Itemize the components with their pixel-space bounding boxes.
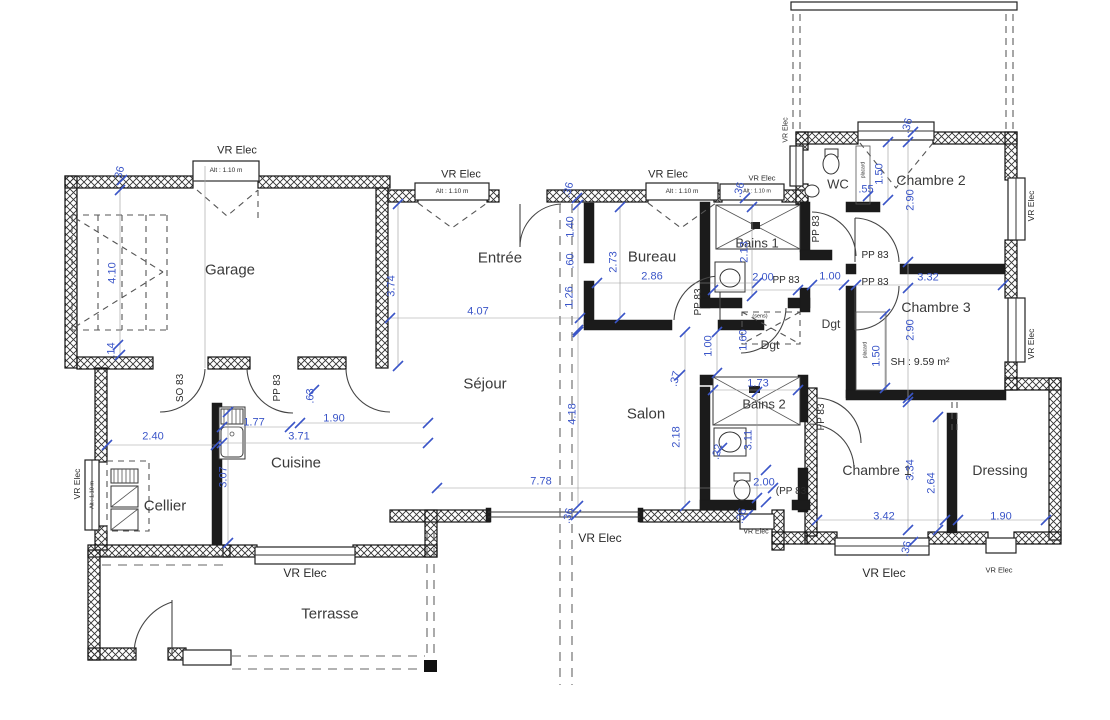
dimension-label: .60 xyxy=(566,253,577,268)
dimension-label: 2.13 xyxy=(740,241,751,262)
annotation-label: PP 83 xyxy=(772,276,799,286)
dimension-label: 2.40 xyxy=(142,432,163,443)
annotation-label: PP 83 xyxy=(694,288,704,315)
dimension-label: 2.90 xyxy=(906,189,917,210)
annotation-label: VR Elec xyxy=(283,567,326,579)
dimension-label: .55 xyxy=(858,185,873,196)
room-label: Chambre 1 xyxy=(842,463,911,477)
room-label: Terrasse xyxy=(301,607,359,622)
dimension-label: 1.60 xyxy=(739,329,750,350)
dimension-label: 3.32 xyxy=(917,273,938,284)
dimension-label: 2.90 xyxy=(906,319,917,340)
dimension-label: 3.11 xyxy=(744,430,755,451)
annotation-label: SH : 9.59 m² xyxy=(891,357,950,368)
dimension-label: 3.07 xyxy=(219,466,230,487)
room-label: Garage xyxy=(205,263,255,278)
room-label: Dgt xyxy=(822,318,841,330)
annotation-label: PP 83 xyxy=(861,251,888,261)
dimension-label: 1.77 xyxy=(243,418,264,429)
dimension-label: .14 xyxy=(107,342,118,357)
room-label: Chambre 2 xyxy=(896,173,965,187)
room-label: Cellier xyxy=(144,499,187,514)
annotation-label: (PP 83 xyxy=(776,487,806,497)
annotation-label: PP 83 xyxy=(817,403,827,430)
dimension-label: 1.73 xyxy=(747,379,768,390)
annotation-label: VR Elec xyxy=(1027,191,1036,222)
room-label: Séjour xyxy=(463,377,506,392)
room-label: Salon xyxy=(627,407,665,422)
dimension-label: 4.18 xyxy=(568,403,579,424)
room-label: Dressing xyxy=(972,463,1027,477)
annotation-label: Alt : 1.10 m xyxy=(90,481,96,509)
room-label: WC xyxy=(827,178,849,191)
annotation-label: VR Elec xyxy=(748,174,775,182)
annotation-label: Alt : 1.10 m xyxy=(436,189,469,196)
dimension-label: 2.00 xyxy=(752,273,773,284)
annotation-label: VR Elec xyxy=(1027,329,1036,360)
room-label: Bureau xyxy=(628,250,676,265)
annotation-label: VR Elec xyxy=(862,567,905,579)
fixtures xyxy=(107,146,957,531)
dimension-label: 1.00 xyxy=(704,335,715,356)
dimension-label: 4.07 xyxy=(467,307,488,318)
carport-outline xyxy=(791,2,1017,130)
dimension-label: .63 xyxy=(306,388,317,403)
room-label: Dgt xyxy=(761,339,780,351)
dimension-label: 4.10 xyxy=(108,262,119,283)
dimension-label: 3.34 xyxy=(906,459,917,480)
annotation-label: Alt : 1.10 m xyxy=(210,168,243,175)
dimension-label: 1.40 xyxy=(566,216,577,237)
dimension-label: 1.00 xyxy=(819,272,840,283)
annotation-label: VR Elec xyxy=(441,170,481,181)
room-label: Bains 2 xyxy=(742,398,785,411)
annotation-label: SO 83 xyxy=(176,374,186,402)
dimension-label: 3.42 xyxy=(873,512,894,523)
annotation-label: placard xyxy=(864,342,869,358)
dimension-label: 1.90 xyxy=(323,414,344,425)
dimension-label: 7.78 xyxy=(530,477,551,488)
dimension-label: 2.73 xyxy=(609,251,620,272)
annotation-label: placard xyxy=(862,162,867,178)
room-label: Cuisine xyxy=(271,456,321,471)
dimension-label: 2.18 xyxy=(672,426,683,447)
annotation-label: VR Elec xyxy=(648,170,688,181)
annotation-label: PP 83 xyxy=(861,278,888,288)
annotation-label: VR Elec xyxy=(217,146,257,157)
dimension-label: 1.50 xyxy=(875,163,886,184)
dimension-label: 1.26 xyxy=(565,286,576,307)
room-label: Chambre 3 xyxy=(901,300,970,314)
annotation-label: VR Elec xyxy=(578,532,621,544)
dimension-label: 2.64 xyxy=(927,472,938,493)
room-label: Entrée xyxy=(478,251,522,266)
annotation-label: (sens) xyxy=(752,314,767,320)
dimension-label: 3.74 xyxy=(387,275,398,296)
dimension-label: 2.00 xyxy=(753,478,774,489)
dimension-label: 1.50 xyxy=(872,345,883,366)
annotation-label: VR Elec xyxy=(985,566,1012,574)
annotation-label: PP 83 xyxy=(812,215,822,242)
annotation-label: Alt : 1.10 m xyxy=(743,189,771,195)
annotation-label: VR Elec xyxy=(743,529,768,536)
dimension-label: 2.86 xyxy=(641,272,662,283)
annotation-label: Alt : 1.10 m xyxy=(666,189,699,196)
annotation-label: VR Elec xyxy=(73,469,82,500)
annotation-label: PP 83 xyxy=(273,374,283,401)
floor-plan: GarageEntréeBureauSéjourSalonCuisineCell… xyxy=(0,0,1110,720)
dashed-lines xyxy=(72,204,800,685)
dimension-label: 3.71 xyxy=(288,432,309,443)
annotation-label: VR Elec xyxy=(783,117,790,142)
dimension-label: 1.90 xyxy=(990,512,1011,523)
